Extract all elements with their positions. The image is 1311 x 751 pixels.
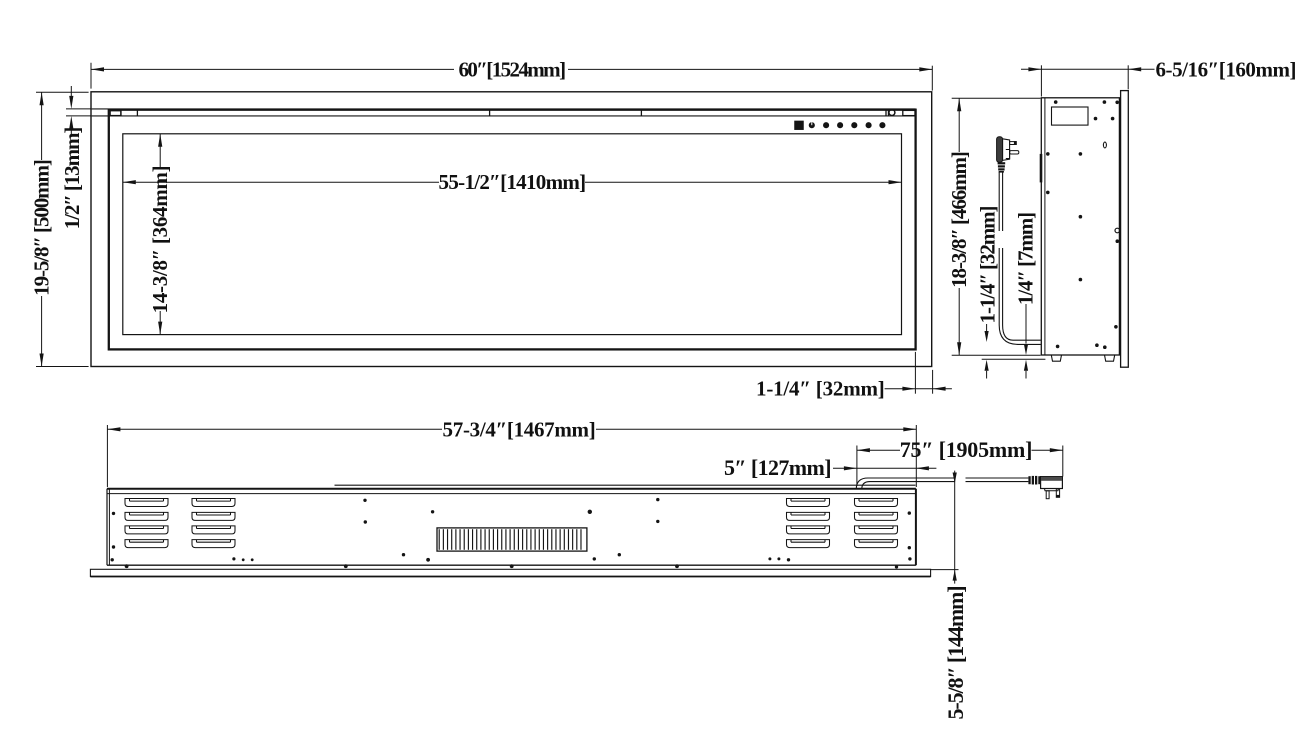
svg-text:75″ [1905mm]: 75″ [1905mm] — [900, 437, 1033, 462]
svg-text:1/4″ [7mm]: 1/4″ [7mm] — [1014, 213, 1038, 305]
svg-text:5-5/8″ [144mm]: 5-5/8″ [144mm] — [943, 587, 968, 720]
svg-text:6-5/16″[160mm]: 6-5/16″[160mm] — [1156, 57, 1297, 81]
svg-text:18-3/8″ [466mm]: 18-3/8″ [466mm] — [947, 152, 971, 288]
svg-text:19-5/8″ [500mm]: 19-5/8″ [500mm] — [30, 160, 54, 296]
svg-text:14-3/8″ [364mm]: 14-3/8″ [364mm] — [148, 166, 172, 314]
svg-text:1/2″ [13mm]: 1/2″ [13mm] — [60, 128, 84, 230]
svg-text:1-1/4″ [32mm]: 1-1/4″ [32mm] — [756, 377, 885, 401]
svg-text:1-1/4″ [32mm]: 1-1/4″ [32mm] — [976, 206, 1000, 323]
svg-text:57-3/4″[1467mm]: 57-3/4″[1467mm] — [443, 417, 596, 441]
svg-text:5″ [127mm]: 5″ [127mm] — [724, 455, 831, 480]
svg-text:60″[1524mm]: 60″[1524mm] — [459, 57, 566, 81]
svg-text:55-1/2″[1410mm]: 55-1/2″[1410mm] — [439, 170, 586, 194]
